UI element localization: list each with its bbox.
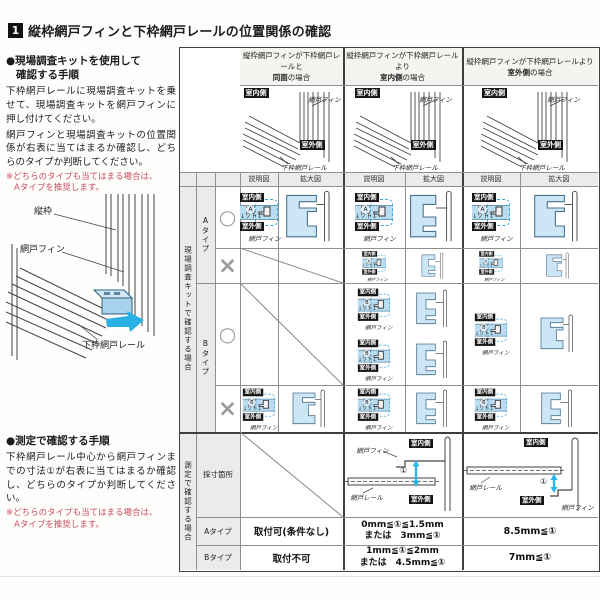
kit-schematic: 室内側 A ↓ソト↓ 室外側 網戸フィン [355, 193, 393, 241]
rail-label: 網戸レール [350, 492, 385, 502]
outdoor-badge: 室外側 [538, 140, 563, 150]
soto-mark: ↓ソト↓ [475, 330, 494, 336]
enlarged-profile [532, 190, 586, 244]
rail-label: 下枠網戸レール [82, 338, 145, 351]
b-ok-case3-schematic: 室内側 B ↓ソト↓ 室外側 網戸フィン [462, 308, 520, 359]
a-ok-case2-enlarged [405, 186, 462, 248]
rail-label: 網戸レール [469, 482, 504, 492]
kit-method-para1: 下枠網戸レールに現場調査キットを乗せて、現場調査キットを網戸フィンに押し付けてく… [6, 85, 176, 126]
corner-perspective-diagram: 室内側 網戸フィン 室外側 下枠網戸レール [242, 86, 342, 171]
measure-b-row-label: Bタイプ [196, 545, 240, 570]
fin-label: 網戸フィン [482, 422, 511, 431]
soto-mark: ↓ソト↓ [358, 356, 377, 362]
case1-schematic-header: 説明図 [240, 172, 278, 186]
fin-label: 網戸フィン [365, 322, 394, 331]
kit-schematic: 室内側 A ↓ソト↓ 室外側 網戸フィン [362, 251, 386, 281]
fin-label: 網戸フィン [367, 275, 388, 281]
kit-schematic: 室内側 B ↓ソト↓ 室外側 網戸フィン [475, 388, 507, 429]
enlarged-profile [536, 314, 582, 354]
kit-schematic: 室内側 A ↓ソト↓ 室外側 網戸フィン [472, 193, 510, 241]
a-ng-case2-schematic: 室内側 A ↓ソト↓ 室外側 網戸フィン [343, 248, 405, 283]
indoor-badge: 室内側 [244, 88, 269, 98]
b-ok-case3-enlarged [520, 308, 598, 359]
soto-mark: ↓ソト↓ [479, 263, 493, 267]
enlarged-profile [536, 389, 582, 429]
b-ok-case2-schematic-1: 室内側 B ↓ソト↓ 室外側 網戸フィン [343, 283, 405, 334]
outdoor-badge: 室外側 [358, 313, 378, 321]
indoor-badge: 室内側 [355, 88, 380, 98]
b-ok-case1-empty [240, 283, 343, 385]
enlarged-profile [288, 389, 334, 429]
enlarged-profile [407, 190, 461, 244]
a-ok-case2-schematic: 室内側 A ↓ソト↓ 室外側 網戸フィン [343, 186, 405, 248]
outdoor-badge: 室外側 [475, 413, 495, 421]
outdoor-badge: 室外側 [240, 222, 264, 231]
case2-schematic-header: 説明図 [343, 172, 405, 186]
b-ok-case2-schematic-2: 室内側 B ↓ソト↓ 室外側 網戸フィン [343, 334, 405, 385]
fin-label: 網戸フィン [356, 445, 391, 455]
a-ng-case3-schematic: 室内側 A ↓ソト↓ 室外側 網戸フィン [462, 248, 520, 283]
soto-mark: ↓ソト↓ [243, 405, 262, 411]
rail-label: 下枠網戸レール [280, 162, 328, 172]
outdoor-badge: 室外側 [475, 338, 495, 346]
soto-mark: ↓ソト↓ [358, 305, 377, 311]
b-ng-case3-enlarged [520, 385, 598, 432]
fin-label: 網戸フィン [250, 422, 279, 431]
indoor-badge: 室内側 [524, 438, 548, 447]
type-a-ok-mark: ○ [215, 186, 240, 248]
outdoor-badge: 室外側 [300, 140, 325, 150]
indoor-badge: 室内側 [243, 388, 263, 396]
type-b-label: Bタイプ [196, 283, 215, 432]
fin-label: 網戸フィン [561, 502, 596, 512]
measure-method-instructions: ●測定で確認する手順 下枠網戸レール中心から網戸フィンまでの寸法①が右表に当ては… [6, 434, 176, 531]
b-ng-case2-schematic: 室内側 B ↓ソト↓ 室外側 網戸フィン [343, 385, 405, 432]
kit-method-heading: ●現場調査キットを使用して 確認する手順 [6, 54, 176, 82]
kit-method-para2: 網戸フィンと現場調査キットの位置関係が右表に当てはまるか確認し、どちらのタイプか… [6, 129, 176, 170]
fin-label: 網戸フィン [20, 242, 65, 255]
indoor-badge: 室内側 [409, 439, 433, 448]
a-ok-case3-schematic: 室内側 A ↓ソト↓ 室外側 網戸フィン [462, 186, 520, 248]
case1-type-b-value: 取付不可 [240, 545, 343, 570]
a-ok-case1-schematic: 室内側 A ↓ソト↓ 室外側 網戸フィン [240, 186, 278, 248]
measure-method-heading: ●測定で確認する手順 [6, 434, 176, 448]
fin-label: 網戸フィン [547, 94, 582, 104]
measure-case3-diagram: 室内側 ① 網戸レール 室外側 網戸フィン [462, 432, 598, 517]
kit-schematic: 室内側 B ↓ソト↓ 室外側 網戸フィン [358, 388, 390, 429]
measure-a-row-label: Aタイプ [196, 517, 240, 545]
outdoor-badge: 室外側 [243, 413, 263, 421]
indoor-badge: 室内側 [355, 193, 379, 202]
b-ng-case1-schematic: 室内側 B ↓ソト↓ 室外側 網戸フィン [240, 385, 278, 432]
case3-corner-diagram: 室内側 網戸フィン 室外側 下枠網戸レール [462, 85, 598, 172]
kit-schematic: 室内側 A ↓ソト↓ 室外側 網戸フィン [479, 251, 503, 281]
frame-corner-diagram: 縦枠 網戸フィン 下枠網戸レール [6, 186, 174, 364]
soto-mark: ↓ソト↓ [355, 213, 377, 220]
case3-type-a-value: 8.5mm≦① [462, 517, 598, 545]
page-edge-line [0, 576, 600, 577]
case3-type-b-value: 7mm≦① [462, 545, 598, 570]
b-ok-case2-enlarged-2 [405, 334, 462, 385]
case1-title: 縦枠網戸フィンが下枠網戸レールと 同面の場合 [240, 48, 343, 85]
fin-label: 網戸フィン [480, 233, 515, 243]
case3-enlarged-header: 拡大図 [520, 172, 598, 186]
b-ng-case2-enlarged [405, 385, 462, 432]
case2-enlarged-header: 拡大図 [405, 172, 462, 186]
diagonal-na [240, 283, 343, 385]
outdoor-badge: 室外側 [362, 269, 377, 275]
measure-case2-diagram: 室内側 網戸フィン ① 網戸レール 室外側 [343, 432, 462, 517]
indoor-badge: 室内側 [479, 251, 494, 257]
a-ok-case3-enlarged [520, 186, 598, 248]
kit-schematic: 室内側 B ↓ソト↓ 室外側 網戸フィン [475, 313, 507, 354]
soto-mark: ↓ソト↓ [475, 405, 494, 411]
b-ng-case3-schematic: 室内側 B ↓ソト↓ 室外側 網戸フィン [462, 385, 520, 432]
measure-point-row-label: 採寸箇所 [196, 432, 240, 517]
fin-label: 網戸フィン [308, 94, 343, 104]
kit-section-group-label: 現場調査キットで確認する場合 [180, 186, 196, 432]
kit-schematic: 室内側 B ↓ソト↓ 室外側 網戸フィン [358, 288, 390, 329]
rail-label: 下枠網戸レール [391, 162, 439, 172]
indoor-badge: 室内側 [358, 388, 378, 396]
kit-schematic: 室内側 B ↓ソト↓ 室外側 網戸フィン [358, 339, 390, 380]
a-ng-case3-enlarged [520, 248, 598, 283]
case1-enlarged-header: 拡大図 [278, 172, 343, 186]
measure-method-para: 下枠網戸レール中心から網戸フィンまでの寸法①が右表に当てはまるか確認し、どちらの… [6, 451, 176, 506]
outdoor-badge: 室外側 [409, 495, 433, 504]
fin-label: 網戸フィン [484, 275, 505, 281]
soto-mark: ↓ソト↓ [240, 213, 262, 220]
dimension-1-mark: ① [540, 477, 547, 486]
enlarged-profile [415, 252, 453, 280]
fin-label: 網戸フィン [482, 347, 511, 356]
type-b-ok-mark: ○ [215, 283, 240, 385]
catalog-page: 1 縦枠網戸フィンと下枠網戸レールの位置関係の確認 ●現場調査キットを使用して … [0, 0, 600, 600]
type-a-ng-mark: × [215, 248, 240, 283]
measure-case1-empty [240, 432, 343, 517]
case1-corner-diagram: 室内側 網戸フィン 室外側 下枠網戸レール [240, 85, 343, 172]
indoor-badge: 室内側 [358, 339, 378, 347]
enlarged-profile [411, 289, 457, 329]
dimension-1-mark: ① [400, 466, 407, 475]
fin-label: 網戸フィン [419, 94, 454, 104]
b-ok-case2-enlarged-1 [405, 283, 462, 334]
indoor-badge: 室内側 [475, 388, 495, 396]
outdoor-badge: 室外側 [411, 140, 436, 150]
rail-label: 下枠網戸レール [519, 162, 567, 172]
fin-label: 網戸フィン [365, 422, 394, 431]
b-ng-case1-enlarged [278, 385, 343, 432]
indoor-badge: 室内側 [240, 193, 264, 202]
outdoor-badge: 室外側 [472, 222, 496, 231]
enlarged-profile [284, 190, 338, 244]
a-ng-case1-empty [240, 248, 343, 283]
case2-title: 縦枠網戸フィンが下枠網戸レールより 室内側の場合 [343, 48, 462, 85]
enlarged-profile [411, 340, 457, 380]
outdoor-badge: 室外側 [355, 222, 379, 231]
kit-method-instructions: ●現場調査キットを使用して 確認する手順 下枠網戸レールに現場調査キットを乗せて… [6, 54, 176, 195]
frame-label: 縦枠 [34, 204, 52, 217]
corner-perspective-diagram: 室内側 網戸フィン 室外側 下枠網戸レール [353, 86, 453, 171]
diagonal-na [240, 432, 343, 517]
a-ok-case1-enlarged [278, 186, 343, 248]
section-title: 1 縦枠網戸フィンと下枠網戸レールの位置関係の確認 [8, 21, 331, 40]
kit-schematic: 室内側 A ↓ソト↓ 室外側 網戸フィン [240, 193, 278, 241]
indoor-badge: 室内側 [475, 313, 495, 321]
case3-schematic-header: 説明図 [462, 172, 520, 186]
section-number-badge: 1 [8, 23, 23, 38]
case2-corner-diagram: 室内側 網戸フィン 室外側 下枠網戸レール [343, 85, 462, 172]
soto-mark: ↓ソト↓ [472, 213, 494, 220]
indoor-badge: 室内側 [472, 193, 496, 202]
indoor-badge: 室内側 [362, 251, 377, 257]
enlarged-profile [540, 252, 578, 280]
soto-mark: ↓ソト↓ [362, 263, 376, 267]
fin-label: 網戸フィン [363, 233, 398, 243]
case2-type-a-value: 0mm≦①≦1.5mm または 3mm≦① [343, 517, 462, 545]
outdoor-badge: 室外側 [358, 364, 378, 372]
corner-perspective-diagram: 室内側 網戸フィン 室外側 下枠網戸レール [480, 86, 580, 171]
case2-type-b-value: 1mm≦①≦2mm または 4.5mm≦① [343, 545, 462, 570]
enlarged-profile [411, 389, 457, 429]
type-a-label: Aタイプ [196, 186, 215, 283]
soto-mark: ↓ソト↓ [358, 405, 377, 411]
page-title: 縦枠網戸フィンと下枠網戸レールの位置関係の確認 [28, 21, 331, 40]
position-check-table: 縦枠網戸フィンが下枠網戸レールと 同面の場合 縦枠網戸フィンが下枠網戸レールより… [179, 47, 600, 572]
case3-title: 縦枠網戸フィンが下枠網戸レールより 室外側の場合 [462, 48, 598, 85]
case1-type-a-value: 取付可(条件なし) [240, 517, 343, 545]
diagonal-na [240, 248, 343, 283]
measure-section-group-label: 測定で確認する場合 [180, 432, 196, 570]
type-b-ng-mark: × [215, 385, 240, 432]
kit-schematic: 室内側 B ↓ソト↓ 室外側 網戸フィン [243, 388, 275, 429]
fin-label: 網戸フィン [365, 373, 394, 382]
indoor-badge: 室内側 [358, 288, 378, 296]
a-ng-case2-enlarged [405, 248, 462, 283]
measure-method-note: ※どちらのタイプも当てはまる場合は、 Aタイプを推奨します。 [6, 508, 176, 531]
indoor-badge: 室内側 [482, 88, 507, 98]
outdoor-badge: 室外側 [479, 269, 494, 275]
outdoor-badge: 室外側 [520, 496, 544, 505]
outdoor-badge: 室外側 [358, 413, 378, 421]
